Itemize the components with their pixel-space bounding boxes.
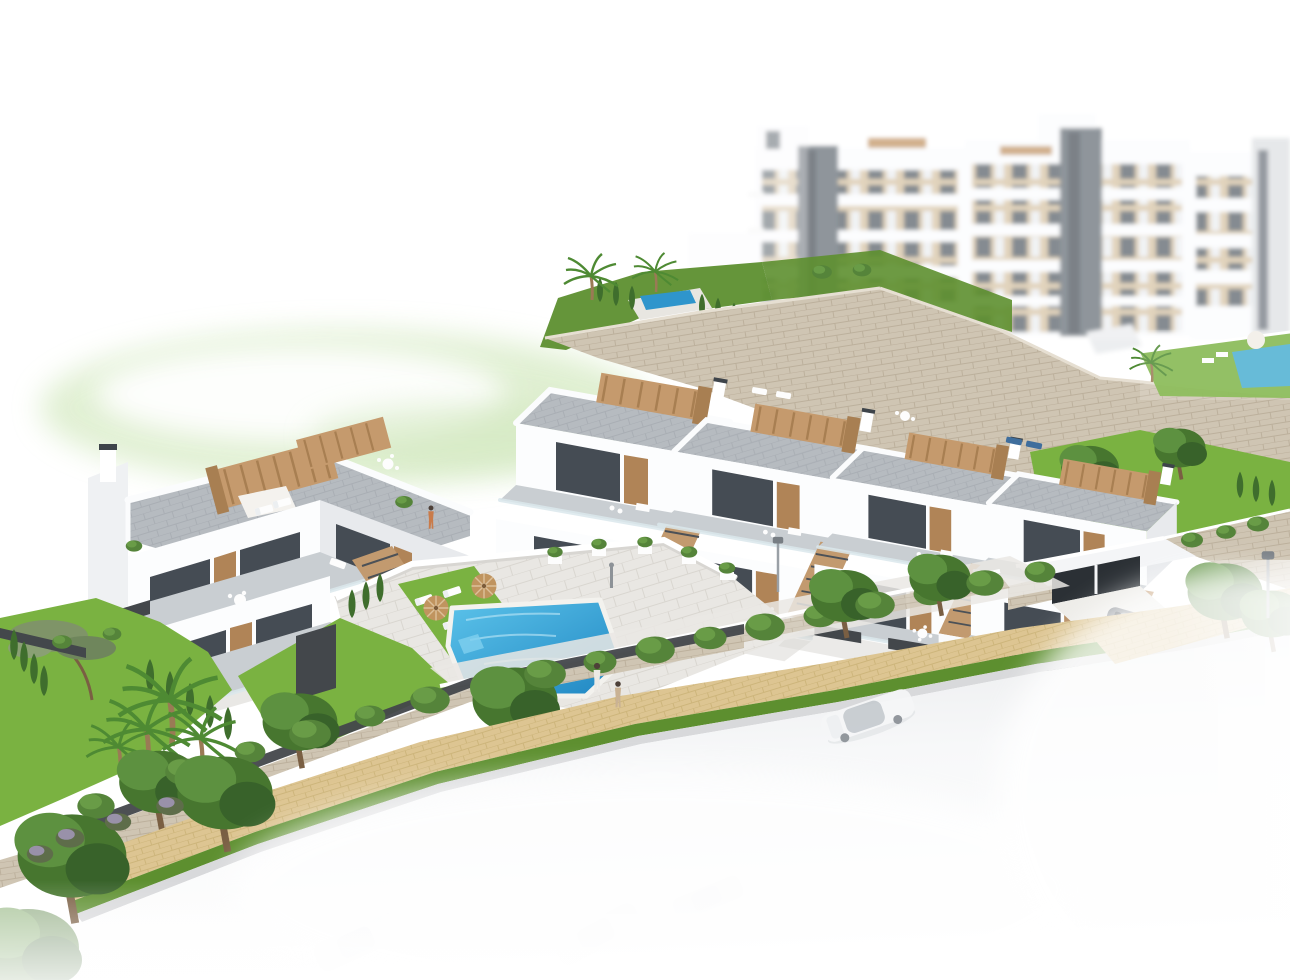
outdoor-shower bbox=[610, 566, 613, 588]
flowering-shrub bbox=[105, 813, 131, 831]
bush bbox=[694, 627, 727, 650]
bush bbox=[584, 651, 617, 674]
bush bbox=[52, 635, 72, 649]
bush bbox=[355, 706, 386, 727]
bush bbox=[289, 720, 331, 749]
bush bbox=[635, 637, 675, 664]
umbrella bbox=[424, 596, 449, 621]
slat-fence-panel bbox=[296, 624, 336, 700]
bush bbox=[745, 614, 785, 641]
bush bbox=[853, 264, 872, 277]
flowering-shrub bbox=[27, 845, 53, 863]
flowering-shrub bbox=[56, 828, 85, 847]
bush bbox=[1025, 562, 1056, 583]
development-render bbox=[0, 0, 1290, 980]
bush bbox=[103, 628, 122, 641]
bush bbox=[1247, 517, 1269, 532]
bush bbox=[77, 793, 114, 819]
chimney bbox=[100, 446, 116, 482]
bush bbox=[524, 660, 566, 689]
umbrella bbox=[472, 574, 497, 599]
bush bbox=[855, 592, 895, 619]
roof-plant bbox=[126, 540, 143, 551]
background-pool-terrace bbox=[1130, 330, 1290, 400]
roof-plant bbox=[395, 496, 413, 508]
bush bbox=[1216, 525, 1236, 539]
bush bbox=[410, 687, 450, 714]
flowering-shrub bbox=[156, 797, 184, 815]
bush bbox=[966, 570, 1003, 596]
render-viewport bbox=[0, 0, 1290, 980]
bush bbox=[1181, 533, 1203, 548]
bush bbox=[812, 265, 832, 279]
